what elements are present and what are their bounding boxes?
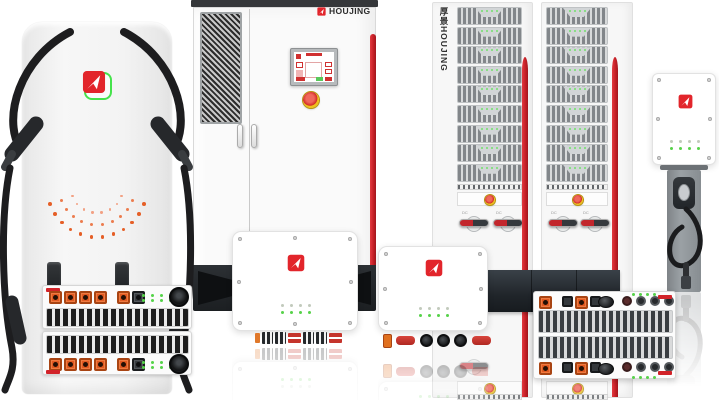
- cabinet-vent-grille: [200, 12, 242, 124]
- status-dot: [116, 203, 118, 205]
- status-dot: [120, 195, 122, 197]
- rack-module: [546, 144, 608, 162]
- status-dot: [60, 199, 63, 202]
- rack-module: [546, 164, 608, 182]
- unit-led-strip: [630, 375, 658, 379]
- charging-power-module-unit[interactable]: [42, 285, 192, 377]
- rack-ladder-reflection: [546, 394, 608, 400]
- charger-logo-icon: [678, 94, 693, 109]
- status-dot: [109, 208, 111, 210]
- blackpair-connector: [275, 348, 286, 360]
- rack-estop-reflection: [546, 381, 608, 395]
- led-indicator-group: [142, 359, 145, 369]
- status-dot: [76, 203, 78, 205]
- maroon-connector: [622, 296, 632, 306]
- rack-ladder-strip: [546, 184, 608, 190]
- led-indicator-group: [151, 292, 154, 302]
- rack-module: [457, 144, 522, 162]
- charger-pedestal: [660, 165, 708, 292]
- dc-switch-2: DC: [580, 210, 610, 234]
- orange-connector: [64, 291, 77, 304]
- orange-connector: [117, 358, 130, 371]
- unit-led-strip: [630, 292, 658, 296]
- rack-module: [457, 66, 522, 84]
- blackpair-connector: [316, 332, 327, 344]
- rack-module: [546, 7, 608, 25]
- orangesm-connector: [255, 349, 260, 359]
- orange-connector: [94, 291, 107, 304]
- blackpair-connector: [262, 348, 273, 360]
- round-connector: [636, 296, 646, 306]
- cabinet-brand: HOUJING: [317, 6, 371, 16]
- led-indicator-group: [142, 292, 145, 302]
- status-dot: [60, 221, 64, 225]
- roundL-connector: [437, 334, 450, 347]
- status-dot: [130, 221, 134, 225]
- roundL-connector: [454, 334, 467, 347]
- status-dot: [111, 220, 114, 223]
- round-connector: [636, 362, 646, 372]
- wallbox-connector-strip: [254, 331, 343, 349]
- dc-switch-1: DC: [459, 210, 489, 234]
- houjing-logo-icon: [317, 7, 326, 16]
- status-dot: [91, 211, 93, 213]
- module-vent-grille: [46, 335, 189, 354]
- rack-module: [546, 46, 608, 64]
- product-showcase: HOUJING 厚景HOUJING DC: [0, 0, 719, 400]
- status-dot: [131, 199, 134, 202]
- rack-mount-charging-unit[interactable]: [533, 291, 676, 379]
- rack-module: [457, 85, 522, 103]
- rack-estop-reflection: [457, 381, 522, 395]
- base-vent-left: [198, 271, 232, 305]
- rack-module: [457, 7, 522, 25]
- rack-red-stripe: [522, 57, 528, 397]
- brand-name: HOUJING: [329, 6, 371, 16]
- blackpair-connector: [303, 348, 314, 360]
- blackpair-connector: [316, 348, 327, 360]
- module-connectors: [48, 290, 146, 308]
- rack-module: [457, 46, 522, 64]
- rack-modules: [546, 7, 608, 183]
- emergency-stop-button: [303, 92, 319, 108]
- rack-estop-button: [573, 195, 583, 205]
- orange-connector: [117, 291, 130, 304]
- sqdark-connector: [562, 296, 573, 307]
- roundL-connector: [420, 334, 433, 347]
- redbar-connector: [329, 333, 342, 343]
- wallbox-right[interactable]: [378, 246, 488, 356]
- status-dot: [126, 208, 129, 211]
- wallbox-logo-icon: [425, 259, 443, 277]
- wallbox-led-grid: [278, 302, 314, 316]
- status-dot: [80, 220, 83, 223]
- module-connectors: [48, 357, 146, 375]
- charging-gun-holster: [673, 375, 695, 400]
- unit-vent-grille-bottom: [538, 336, 673, 359]
- orange-connector: [94, 358, 107, 371]
- blackpair-connector: [275, 332, 286, 344]
- wallbox-center[interactable]: [232, 231, 358, 346]
- sqdark-connector: [562, 362, 573, 373]
- rack-vertical-brand: 厚景HOUJING: [438, 7, 450, 117]
- rack-estop-panel: [457, 192, 522, 206]
- rack-ladder-strip: [457, 184, 522, 190]
- dc-switch-2: DC: [493, 210, 523, 234]
- unit-vent-grille-top: [538, 310, 673, 333]
- blackpair-connector: [303, 332, 314, 344]
- hmi-screen-content: [294, 52, 334, 82]
- orange-connector: [79, 291, 92, 304]
- orange-connector: [49, 291, 62, 304]
- led-indicator-group: [160, 292, 163, 302]
- wallbox-face: [232, 231, 358, 331]
- hmi-screen: [290, 48, 338, 86]
- rack-module: [546, 27, 608, 45]
- cabinet-handle-right: [251, 124, 257, 148]
- led-indicator-group: [151, 359, 154, 369]
- status-dot: [90, 223, 93, 226]
- rack-estop-panel: [546, 192, 608, 206]
- status-dot: [101, 235, 105, 239]
- charger-led-grid: [667, 138, 703, 152]
- status-dot: [112, 232, 116, 236]
- status-dot: [101, 223, 104, 226]
- blackpair-connector: [262, 332, 273, 344]
- maroon-connector: [622, 362, 632, 372]
- module-fan: [169, 287, 189, 307]
- status-dot: [72, 215, 75, 218]
- unit-knob: [598, 363, 614, 375]
- status-dot: [122, 228, 126, 232]
- status-dot: [79, 232, 83, 236]
- status-dot: [119, 215, 122, 218]
- wallbox-face: [232, 361, 358, 400]
- rack-module: [546, 66, 608, 84]
- unit-square-connectors: [538, 361, 602, 379]
- orangetall-connector: [383, 334, 392, 348]
- wallbox-logo-icon: [287, 254, 305, 272]
- rack-module: [457, 27, 522, 45]
- orange-connector: [575, 362, 588, 375]
- dc-switch-reflection: [459, 353, 489, 377]
- redcap-connector: [472, 336, 491, 345]
- rack-modules: [457, 7, 522, 183]
- redcap-connector: [396, 367, 415, 376]
- wallbox-led-grid: [416, 305, 452, 319]
- module-vent-grille: [46, 308, 189, 327]
- rack-module: [457, 164, 522, 182]
- power-module-1: [42, 285, 192, 329]
- status-dot: [142, 202, 146, 206]
- rack-module: [546, 125, 608, 143]
- redcap-connector: [396, 336, 415, 345]
- rack-module: [546, 85, 608, 103]
- orange-connector: [79, 358, 92, 371]
- rack-estop-button: [485, 195, 495, 205]
- wallbox-led-grid: [278, 376, 314, 390]
- rack-module: [546, 105, 608, 123]
- orangesm-connector: [255, 333, 260, 343]
- module-brand-tag: [46, 370, 60, 374]
- status-dot: [53, 212, 57, 216]
- status-dot: [100, 211, 102, 213]
- unit-knob: [598, 296, 614, 308]
- orange-connector: [539, 296, 552, 309]
- wallbox-connector-strip: [382, 332, 494, 350]
- status-dot: [71, 195, 73, 197]
- rack-module: [457, 125, 522, 143]
- unit-brand-tag: [658, 295, 672, 299]
- rack-module: [457, 105, 522, 123]
- rack-ladder-reflection: [457, 394, 522, 400]
- orange-connector: [575, 296, 588, 309]
- module-fan: [169, 354, 189, 374]
- status-dot: [69, 228, 73, 232]
- power-module-2: [42, 331, 192, 375]
- orange-connector: [539, 362, 552, 375]
- unit-brand-tag: [658, 371, 672, 375]
- orangetall-connector: [383, 364, 392, 378]
- wallbox-face: [378, 246, 488, 331]
- status-dot: [137, 212, 141, 216]
- status-dot: [65, 208, 68, 211]
- dc-switch-1: DC: [548, 210, 578, 234]
- status-dot: [83, 208, 85, 210]
- orange-connector: [64, 358, 77, 371]
- cabinet-handle-left: [237, 124, 243, 148]
- charger-box: [652, 73, 716, 165]
- status-dot: [48, 202, 52, 206]
- led-indicator-group: [160, 359, 163, 369]
- status-dot: [90, 235, 94, 239]
- redbar-connector: [329, 349, 342, 359]
- wallbox-center-reflection: [232, 346, 358, 400]
- redbar-connector: [288, 349, 301, 359]
- coiled-cable: [660, 165, 708, 292]
- redbar-connector: [288, 333, 301, 343]
